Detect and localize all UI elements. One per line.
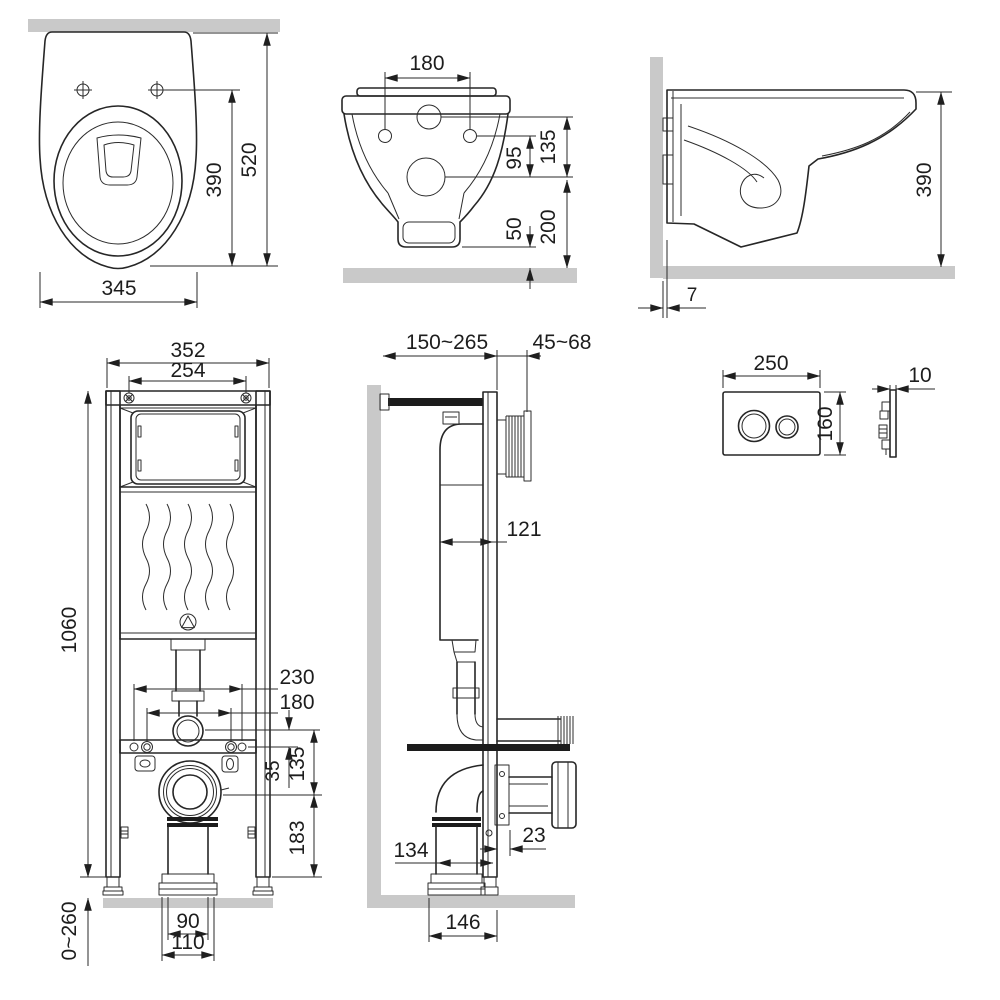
floor-surface-bar — [343, 268, 577, 283]
floor-surface-bar — [103, 898, 273, 908]
mounting-hole-marks — [74, 81, 166, 99]
dim-label-floor-outlet-span: 146 — [445, 911, 480, 934]
dim-label-frame-height: 1060 — [58, 607, 81, 654]
frame-screw-left — [124, 393, 134, 403]
view-flush-plate-front: 250 160 — [723, 352, 846, 455]
dim-label-leg-adjustment: 0~260 — [58, 902, 81, 961]
rail-foot-side — [481, 877, 498, 895]
mounting-crossbar — [120, 740, 256, 772]
dimensions-frame-front: 352 254 1060 230 180 35 135 183 0~260 90… — [58, 339, 322, 966]
brand-triangle-icon — [180, 614, 196, 630]
frame-screw-right — [241, 393, 251, 403]
toilet-bowl-outline — [39, 32, 196, 269]
dim-label-outlet-to-floor: 50 — [503, 217, 526, 240]
cistern-access-window — [120, 408, 256, 487]
drain-socket — [159, 761, 229, 895]
floor-surface-bar — [663, 266, 955, 279]
water-inlet-circle — [417, 105, 441, 129]
dim-label-outlet-to-frame: 134 — [393, 839, 428, 862]
technical-drawing-page: 345 390 520 — [0, 0, 1000, 1000]
cistern-side — [440, 412, 483, 740]
dim-label-cistern-depth: 121 — [506, 518, 541, 541]
dim-label-height: 390 — [913, 162, 936, 197]
drain-outlet-circle — [407, 158, 445, 196]
dimensions-flush-plate-front: 250 160 — [723, 352, 846, 455]
dimensions-frame-side: 150~265 45~68 121 134 23 146 — [383, 331, 591, 942]
wall-surface-bar — [650, 57, 663, 278]
view-frame-side: 150~265 45~68 121 134 23 146 — [367, 331, 591, 942]
view-toilet-front: 180 95 135 50 200 — [342, 52, 577, 289]
dimensions-toilet-side: 390 7 — [638, 92, 952, 318]
dim-label-plate-thickness: 10 — [908, 364, 931, 387]
toilet-side-outline — [663, 90, 916, 247]
dim-label-flush-to-bar: 35 — [263, 760, 284, 781]
fixing-stud-bar — [407, 744, 570, 751]
cistern-body — [120, 405, 256, 639]
wall-surface-bar — [28, 19, 280, 32]
dim-label-drain-to-floor: 200 — [537, 209, 560, 244]
dim-label-plate-height: 160 — [814, 406, 837, 441]
dim-label-anchor-spacing: 230 — [279, 666, 314, 689]
dim-label-stud-spacing: 180 — [279, 691, 314, 714]
installation-dimensions-drawing: 345 390 520 — [0, 0, 1000, 1000]
dim-label-drain-to-base: 183 — [286, 820, 309, 855]
flush-plate-side-body — [890, 390, 896, 457]
dim-label-panel-depth: 45~68 — [533, 331, 592, 354]
dim-label-outlet-width: 90 — [176, 910, 199, 933]
dim-label-wall-gap: 7 — [687, 285, 698, 306]
wall-surface-bar — [367, 385, 381, 908]
dimensions-toilet-top: 345 390 520 — [40, 33, 278, 308]
dim-label-inlet-to-drain: 135 — [537, 129, 560, 164]
dim-label-outlet-flange-width: 110 — [171, 931, 204, 954]
wall-support-rod — [388, 398, 483, 406]
dim-label-bolts-to-drain: 95 — [503, 146, 526, 169]
dim-label-holes-to-front: 390 — [203, 162, 226, 197]
dim-label-panel-width: 254 — [170, 359, 205, 382]
view-toilet-top: 345 390 520 — [28, 19, 280, 308]
adjustable-feet — [103, 877, 273, 895]
flush-button-large — [739, 411, 770, 442]
flush-plate-mechanism — [879, 402, 890, 455]
toilet-front-outline — [342, 88, 510, 247]
flush-housing-fins — [497, 411, 531, 481]
dimensions-flush-plate-side: 10 — [872, 364, 935, 392]
rail-clips — [121, 827, 255, 838]
frame-structure — [103, 391, 273, 895]
view-toilet-side: 390 7 — [638, 57, 955, 318]
dim-label-overall-width: 345 — [101, 277, 136, 300]
water-supply-pipe — [497, 716, 573, 744]
dim-label-wall-to-frame-front: 150~265 — [406, 331, 488, 354]
dim-label-plate-width: 250 — [753, 352, 788, 375]
floor-surface-bar — [367, 895, 575, 908]
insulation-wave-pattern — [143, 504, 234, 610]
frame-side-structure — [380, 392, 576, 895]
drain-connector — [495, 762, 576, 828]
bolt-holes — [379, 130, 477, 143]
view-flush-plate-side: 10 — [872, 364, 935, 457]
dim-label-wall-to-front: 520 — [238, 142, 261, 177]
dim-label-flush-to-drain: 135 — [286, 746, 309, 781]
view-frame-front: 352 254 1060 230 180 35 135 183 0~260 90… — [58, 339, 322, 966]
flush-plate-body — [723, 392, 820, 455]
dim-label-rail-depth: 23 — [522, 824, 545, 847]
flush-pipe — [171, 639, 205, 746]
dim-label-bolt-spacing: 180 — [409, 52, 444, 75]
